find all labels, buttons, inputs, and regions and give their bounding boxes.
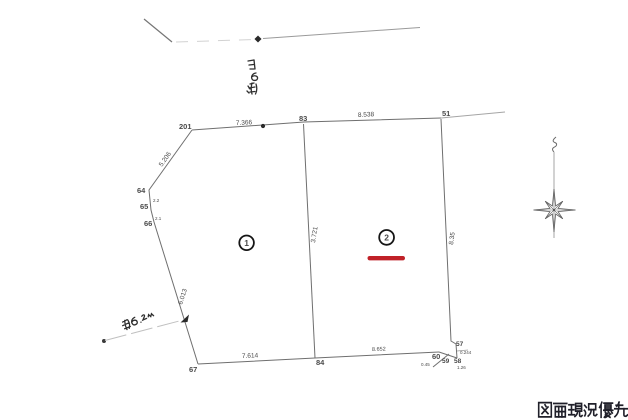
svg-text:3.721: 3.721: [310, 226, 320, 244]
svg-text:58: 58: [454, 358, 462, 365]
svg-text:66: 66: [144, 219, 152, 228]
svg-text:201: 201: [179, 122, 192, 131]
svg-text:0.45: 0.45: [421, 362, 430, 367]
svg-text:7.366: 7.366: [236, 119, 253, 127]
svg-text:64: 64: [137, 186, 146, 195]
svg-text:51: 51: [442, 109, 450, 118]
svg-text:2: 2: [384, 232, 389, 242]
svg-text:7.614: 7.614: [242, 352, 259, 360]
svg-text:6.013: 6.013: [177, 288, 189, 306]
svg-text:1: 1: [244, 238, 249, 248]
svg-text:1.26: 1.26: [457, 365, 466, 370]
svg-text:57: 57: [456, 341, 464, 348]
svg-text:2.2: 2.2: [153, 198, 160, 203]
svg-text:8.652: 8.652: [372, 347, 386, 353]
svg-text:2.1: 2.1: [155, 216, 162, 221]
svg-text:84: 84: [316, 358, 325, 367]
svg-text:83: 83: [299, 114, 307, 123]
svg-text:8.538: 8.538: [358, 111, 375, 119]
svg-text:67: 67: [189, 365, 197, 374]
svg-text:0.244: 0.244: [460, 350, 472, 355]
svg-text:59: 59: [442, 358, 450, 365]
svg-text:8.35: 8.35: [448, 231, 457, 245]
svg-text:65: 65: [140, 202, 148, 211]
svg-text:60: 60: [432, 352, 440, 361]
